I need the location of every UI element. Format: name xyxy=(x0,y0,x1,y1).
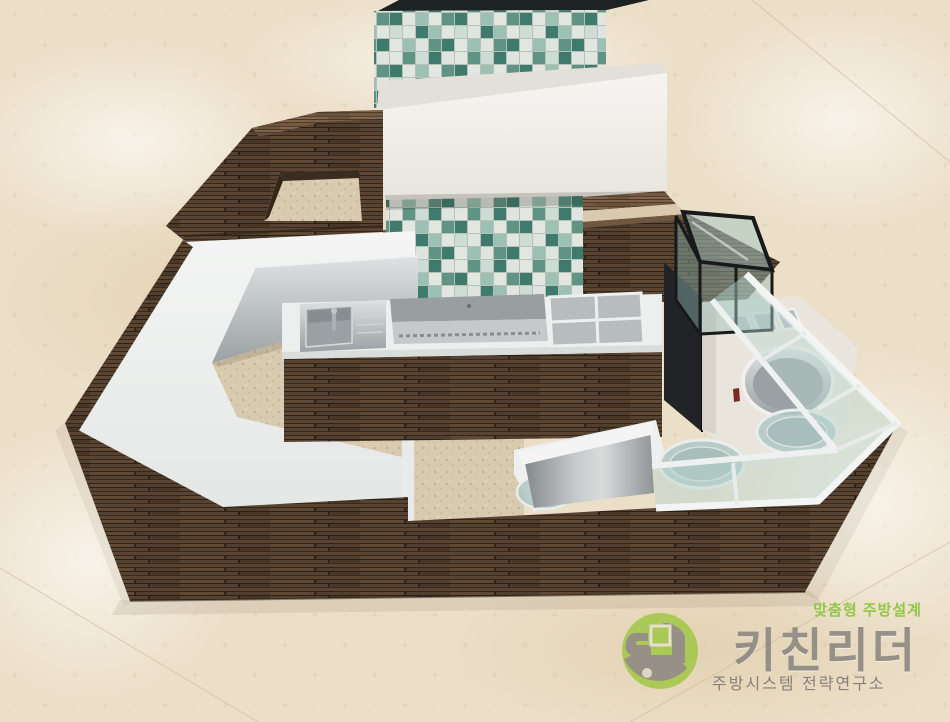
render-scene xyxy=(0,0,950,722)
sink-unit xyxy=(300,300,386,352)
kitchen-3d-render: 맞춤형 주방설계 키친리더 주방시스템 전략연구소 xyxy=(0,0,950,722)
island-wood-front xyxy=(284,350,662,442)
griddle-front xyxy=(392,319,548,344)
indicator-mark xyxy=(733,388,740,402)
bain-marie-unit xyxy=(549,293,644,346)
sink-faucet xyxy=(332,312,336,331)
tower-black-cap xyxy=(378,0,649,11)
cook-island xyxy=(282,293,662,442)
griddle-unit xyxy=(390,294,548,344)
